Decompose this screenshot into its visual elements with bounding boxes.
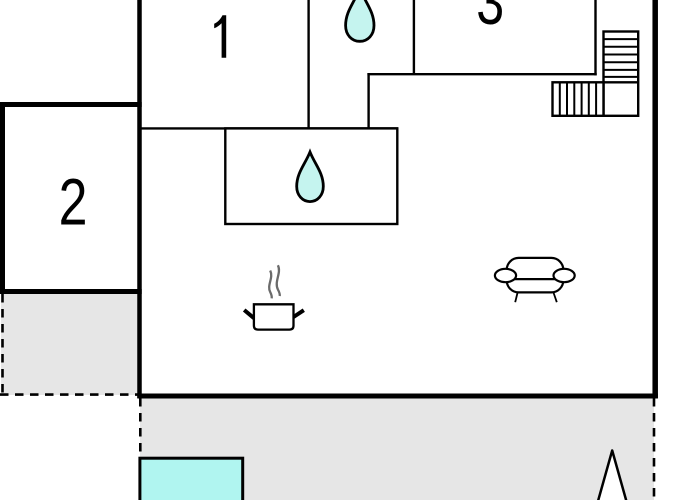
svg-text:2: 2 <box>59 165 88 239</box>
svg-text:3: 3 <box>476 0 504 39</box>
